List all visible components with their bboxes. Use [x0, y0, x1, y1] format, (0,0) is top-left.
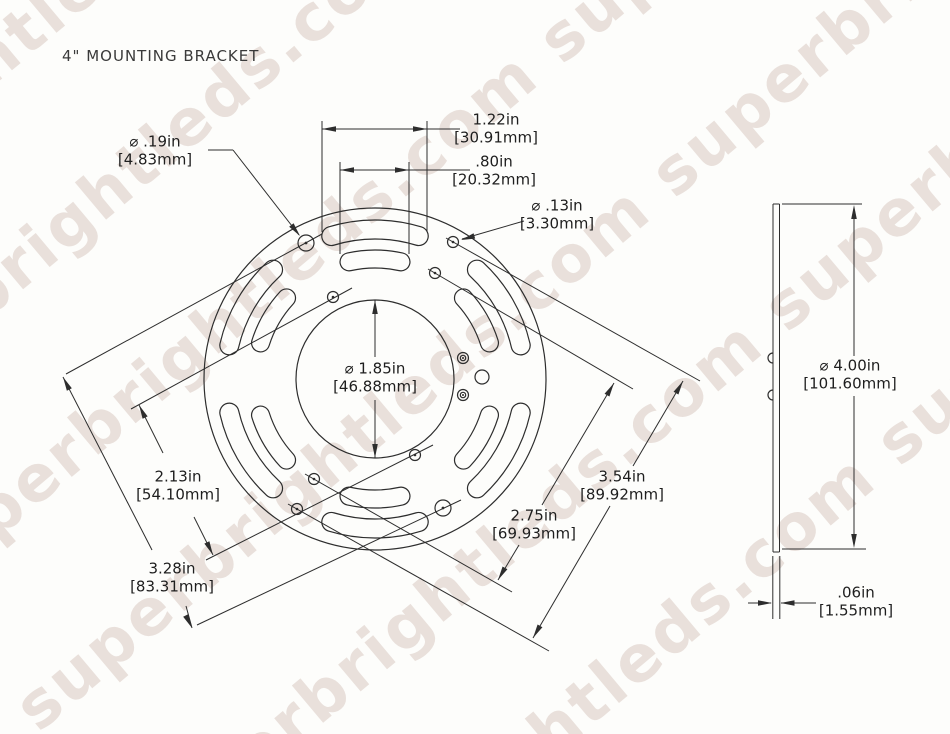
- label-hole-diameter-19: ⌀ .19in[4.83mm]: [118, 133, 192, 170]
- label-thickness: .06in[1.55mm]: [819, 584, 893, 621]
- label-spacing-354: 3.54in[89.92mm]: [580, 468, 664, 505]
- label-outer-diameter: ⌀ 4.00in[101.60mm]: [803, 357, 896, 394]
- label-spacing-213: 2.13in[54.10mm]: [136, 468, 220, 505]
- label-spacing-275: 2.75in[69.93mm]: [492, 507, 576, 544]
- label-slot-width-122: 1.22in[30.91mm]: [454, 111, 538, 148]
- drawing-title: 4" MOUNTING BRACKET: [62, 47, 259, 65]
- label-center-bore: ⌀ 1.85in[46.88mm]: [333, 360, 417, 397]
- label-hole-diameter-13: ⌀ .13in[3.30mm]: [520, 197, 594, 234]
- label-spacing-328: 3.28in[83.31mm]: [130, 560, 214, 597]
- drawing-sheet: superbrightleds.com superbrightleds.com …: [0, 0, 950, 734]
- label-slot-width-80: .80in[20.32mm]: [452, 153, 536, 190]
